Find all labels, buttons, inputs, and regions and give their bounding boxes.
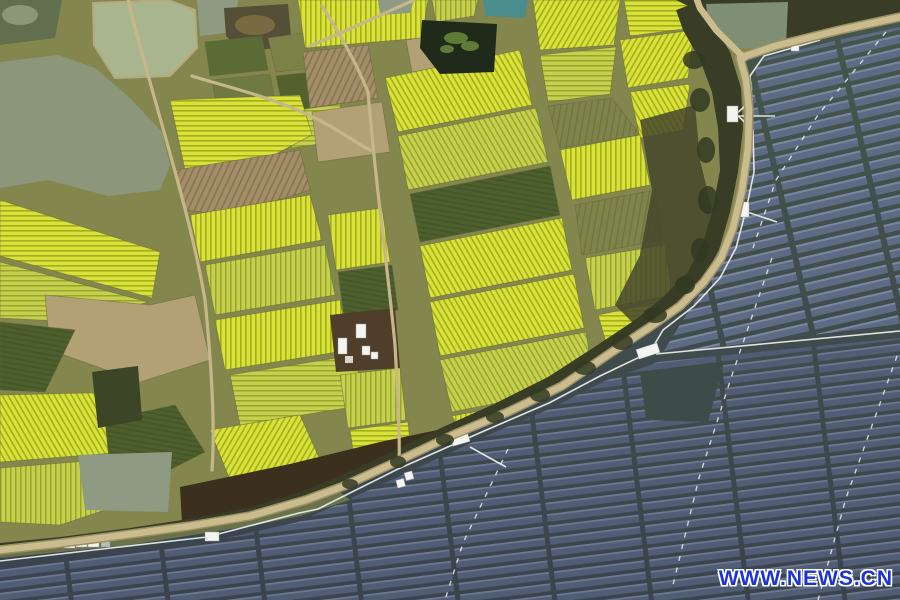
aerial-photo: WWW.NEWS.CN: [0, 0, 900, 600]
inverter-station: [205, 532, 219, 541]
farm-building: [356, 324, 366, 338]
inverter-station: [396, 478, 406, 488]
farm-building-cluster: [330, 308, 400, 372]
farm-building: [362, 346, 370, 355]
farm-building: [345, 356, 353, 363]
tree-patch: [92, 366, 142, 428]
pond: [78, 452, 172, 512]
field-patch: [540, 47, 616, 102]
aerial-photo-canvas: [0, 0, 900, 600]
brush: [235, 15, 275, 35]
garden-plot: [205, 36, 268, 76]
plowed-field: [303, 45, 378, 108]
pond-plants: [461, 41, 479, 51]
farm-building: [371, 352, 378, 359]
inverter-station: [404, 471, 414, 481]
news-cn-watermark: WWW.NEWS.CN: [719, 567, 893, 591]
pond-plants: [440, 45, 454, 53]
inverter-station: [727, 106, 738, 122]
farm-building: [338, 338, 347, 354]
field-patch: [533, 0, 620, 50]
teal-pond: [483, 0, 528, 18]
pond-shallow: [2, 5, 38, 25]
bare-field: [312, 102, 390, 162]
